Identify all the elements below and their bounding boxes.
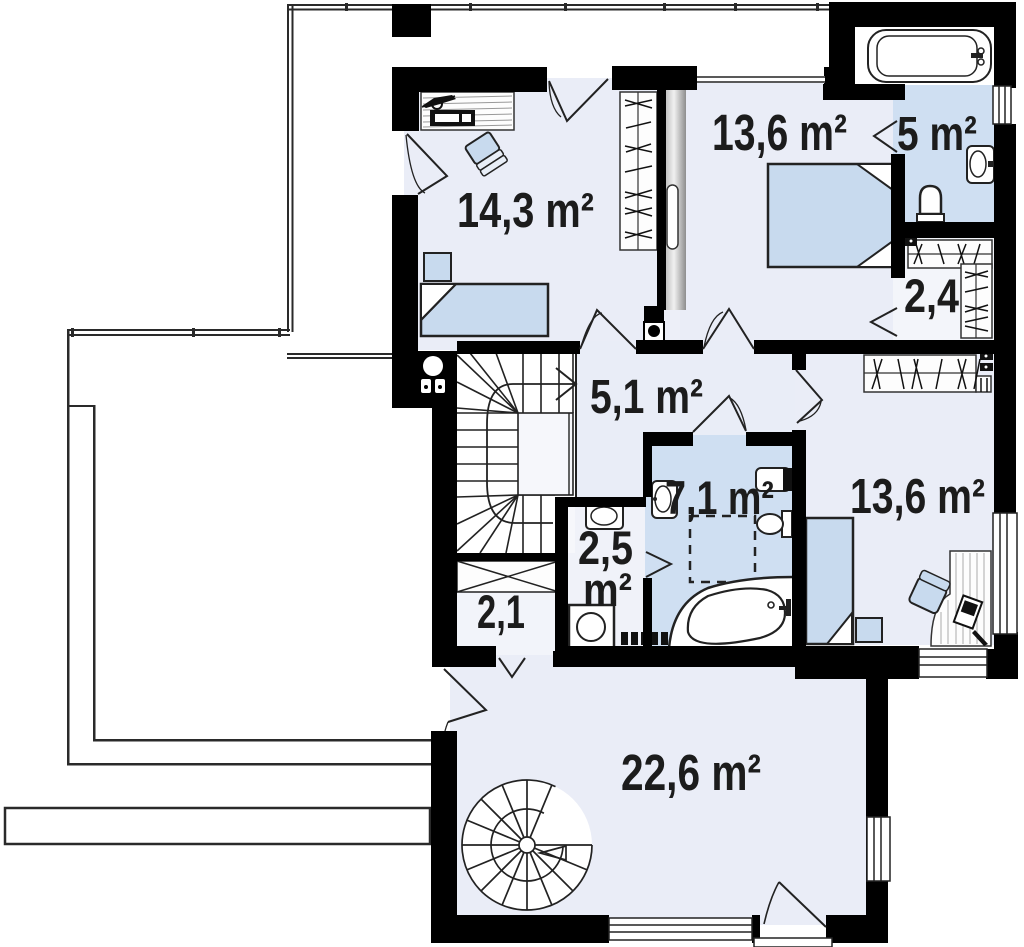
svg-text:13,6 m²: 13,6 m² [712, 104, 847, 161]
svg-text:14,3 m²: 14,3 m² [457, 184, 594, 238]
svg-text:13,6 m²: 13,6 m² [850, 470, 985, 524]
svg-text:2,4: 2,4 [904, 269, 959, 322]
svg-text:m²: m² [583, 563, 632, 616]
svg-text:5 m²: 5 m² [897, 108, 977, 161]
svg-text:7,1 m²: 7,1 m² [665, 471, 774, 524]
svg-text:5,1 m²: 5,1 m² [590, 371, 703, 424]
svg-text:22,6 m²: 22,6 m² [621, 744, 761, 801]
svg-text:2,1: 2,1 [477, 585, 525, 638]
